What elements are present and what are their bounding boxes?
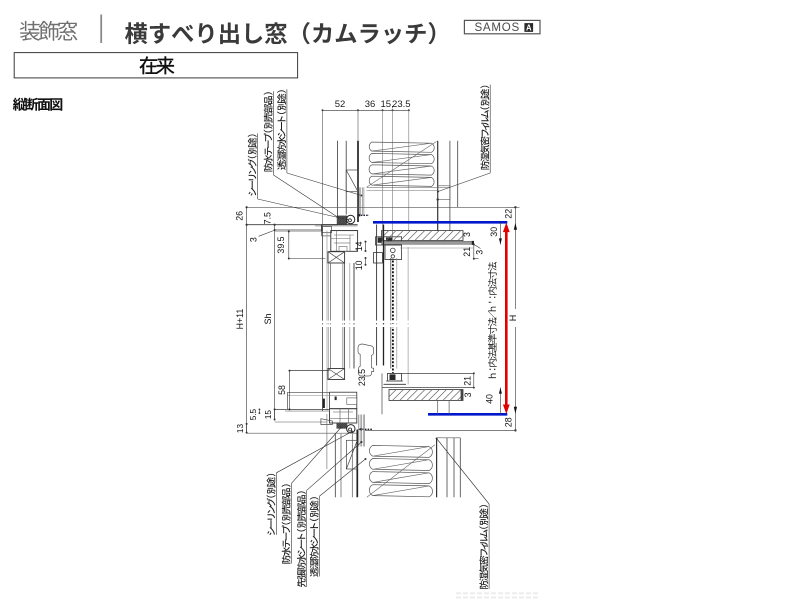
svg-text:H: H xyxy=(508,315,518,322)
svg-text:21: 21 xyxy=(462,376,472,386)
svg-text:13: 13 xyxy=(236,424,245,434)
svg-text:22: 22 xyxy=(504,209,514,219)
svg-text:3: 3 xyxy=(463,392,473,397)
svg-text:39.5: 39.5 xyxy=(276,236,286,253)
svg-text:28: 28 xyxy=(504,417,514,427)
svg-text:36: 36 xyxy=(365,99,376,110)
svg-text:52: 52 xyxy=(335,99,346,110)
svg-text:5.5: 5.5 xyxy=(249,408,258,420)
svg-text:15: 15 xyxy=(381,99,392,110)
svg-text:10: 10 xyxy=(354,260,364,270)
svg-text:7.5: 7.5 xyxy=(262,212,272,224)
svg-text:3: 3 xyxy=(462,232,472,237)
svg-text:30: 30 xyxy=(489,227,499,237)
svg-text:3: 3 xyxy=(248,237,258,242)
svg-text:21: 21 xyxy=(462,247,472,257)
svg-text:3: 3 xyxy=(474,250,484,255)
svg-text:23.5: 23.5 xyxy=(357,369,367,386)
svg-text:26: 26 xyxy=(235,211,245,221)
svg-text:58: 58 xyxy=(277,385,287,395)
svg-text:A: A xyxy=(526,23,532,32)
svg-text:23.5: 23.5 xyxy=(392,99,411,110)
svg-text:14: 14 xyxy=(354,241,364,251)
svg-text:H+11: H+11 xyxy=(235,309,245,330)
svg-text:SAMOS: SAMOS xyxy=(475,21,520,34)
svg-text:Sh: Sh xyxy=(263,314,273,325)
svg-text:15: 15 xyxy=(264,410,273,420)
svg-text:40: 40 xyxy=(485,394,495,404)
